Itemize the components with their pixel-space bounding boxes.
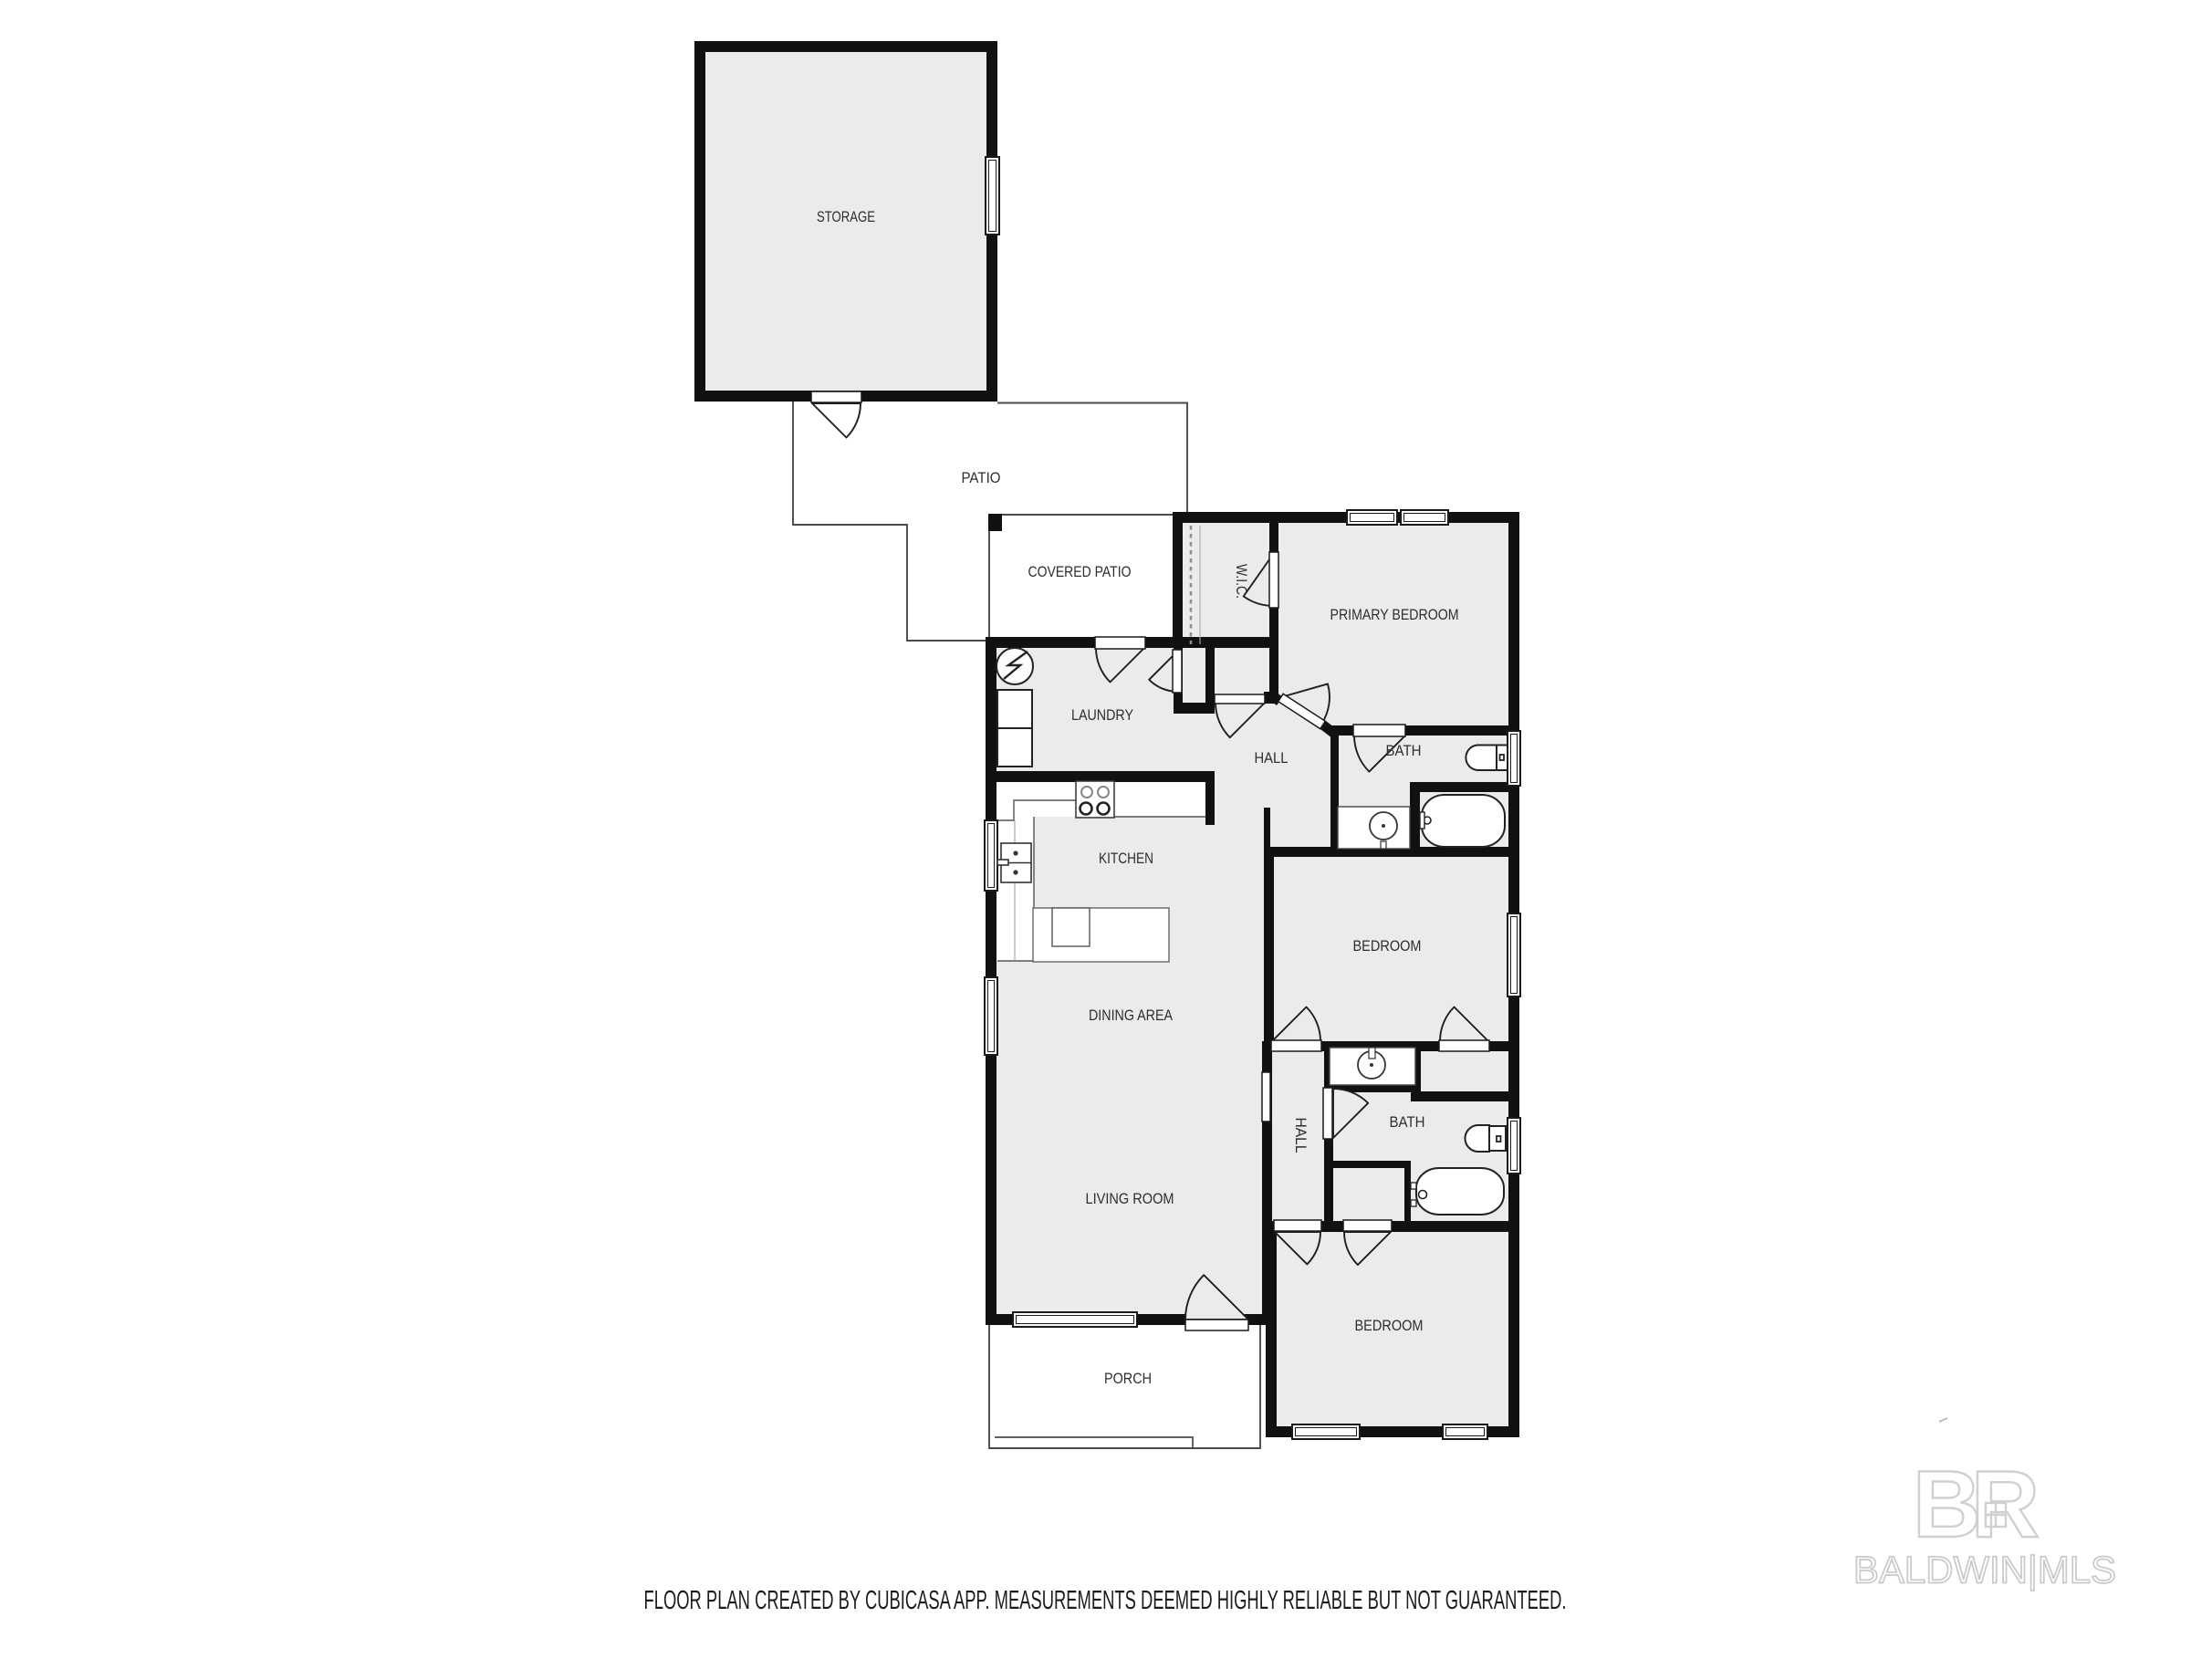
svg-text:STORAGE: STORAGE	[817, 209, 875, 225]
svg-text:PRIMARY BEDROOM: PRIMARY BEDROOM	[1330, 607, 1459, 623]
svg-text:HALL: HALL	[1255, 750, 1289, 767]
svg-text:BATH: BATH	[1386, 743, 1422, 759]
svg-text:PORCH: PORCH	[1104, 1371, 1152, 1387]
svg-text:PATIO: PATIO	[962, 470, 1001, 486]
svg-text:HALL: HALL	[1292, 1118, 1309, 1153]
svg-text:COVERED PATIO: COVERED PATIO	[1028, 564, 1132, 580]
svg-text:FLOOR PLAN CREATED BY CUBICASA: FLOOR PLAN CREATED BY CUBICASA APP. MEAS…	[644, 1586, 1567, 1615]
svg-text:LAUNDRY: LAUNDRY	[1071, 707, 1133, 724]
svg-text:BALDWIN|MLS: BALDWIN|MLS	[1853, 1549, 2116, 1591]
svg-text:BATH: BATH	[1390, 1114, 1425, 1131]
svg-text:KITCHEN: KITCHEN	[1099, 850, 1153, 867]
svg-text:W.I.C.: W.I.C.	[1233, 564, 1249, 599]
svg-text:BEDROOM: BEDROOM	[1353, 938, 1422, 955]
svg-text:BEDROOM: BEDROOM	[1355, 1318, 1424, 1334]
svg-text:LIVING ROOM: LIVING ROOM	[1086, 1191, 1174, 1207]
svg-text:DINING AREA: DINING AREA	[1089, 1007, 1173, 1024]
